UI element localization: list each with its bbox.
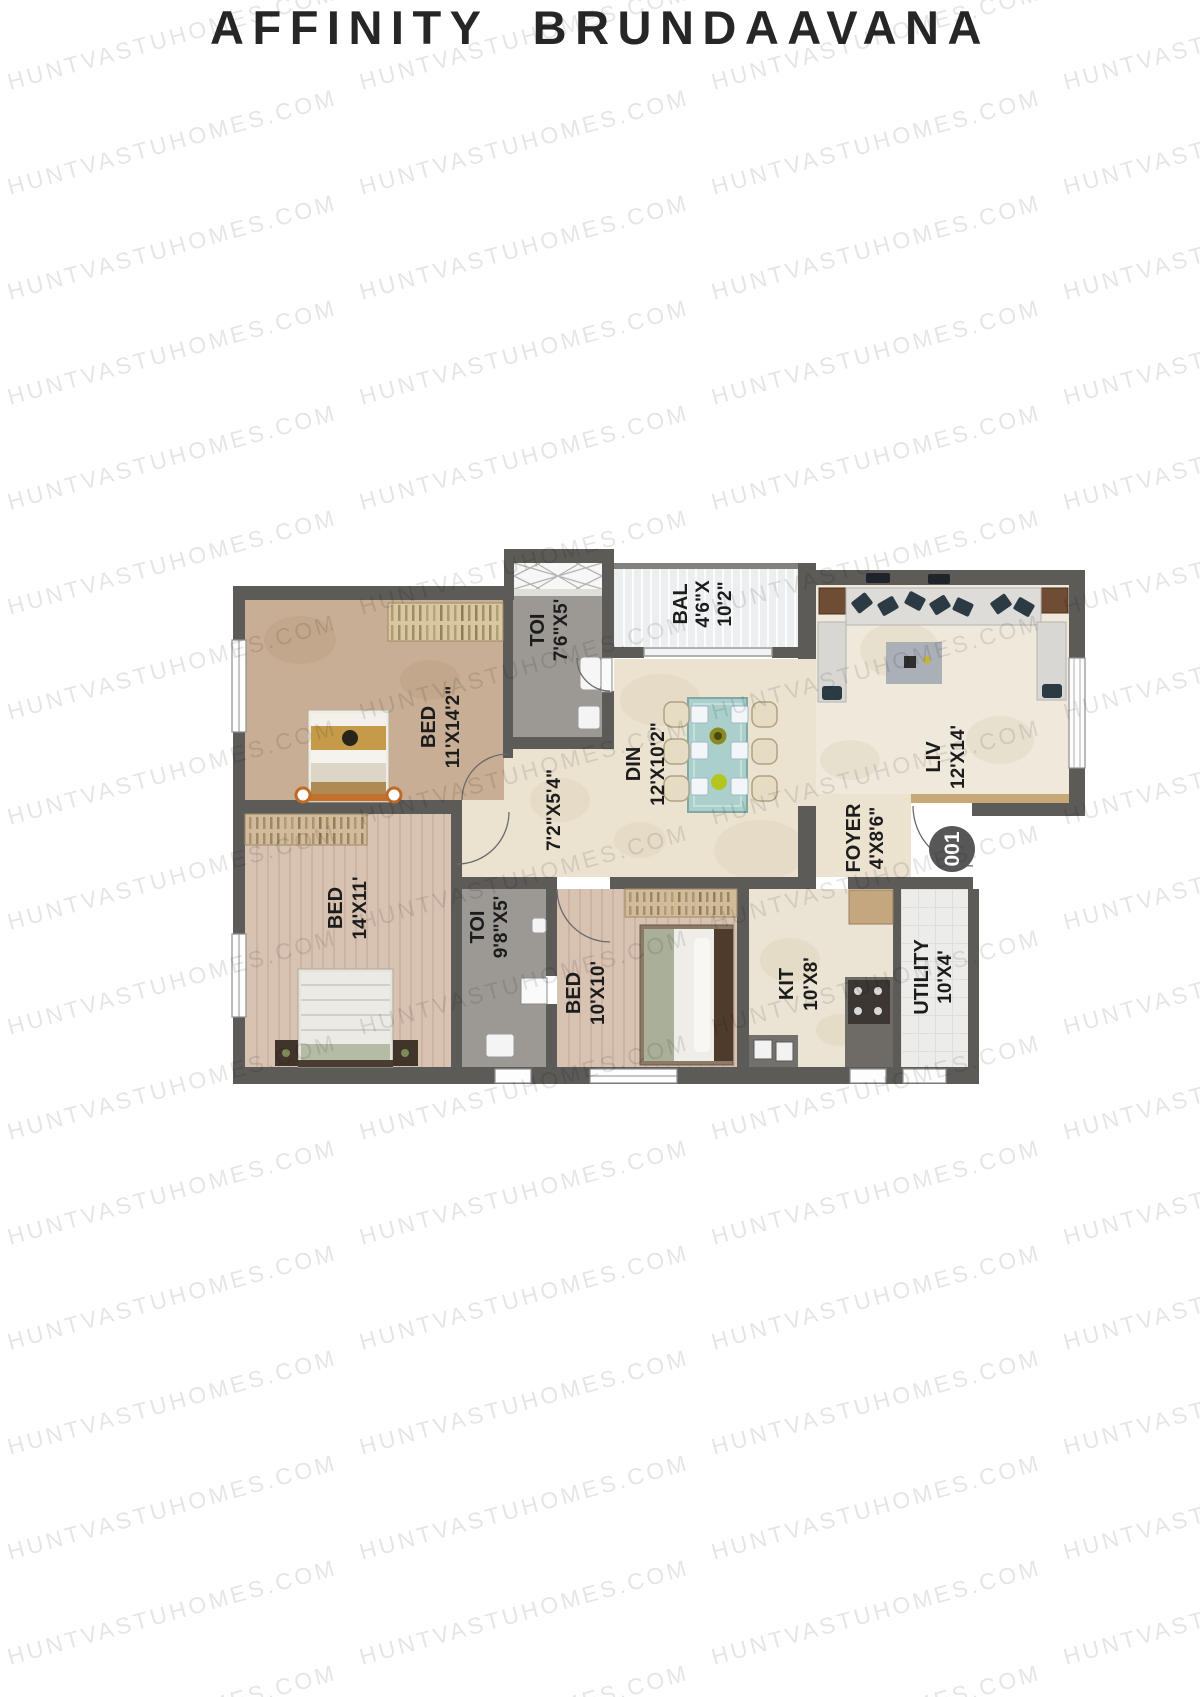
svg-text:HUNTVASTUHOMES.COM: HUNTVASTUHOMES.COM [1060, 84, 1200, 200]
svg-text:BED: BED [325, 887, 347, 929]
svg-text:HUNTVASTUHOMES.COM: HUNTVASTUHOMES.COM [708, 1134, 1044, 1250]
svg-text:TOI: TOI [467, 911, 489, 944]
svg-text:HUNTVASTUHOMES.COM: HUNTVASTUHOMES.COM [356, 399, 692, 515]
svg-text:HUNTVASTUHOMES.COM: HUNTVASTUHOMES.COM [356, 1659, 692, 1697]
svg-text:9'8"X5': 9'8"X5' [491, 896, 512, 958]
svg-text:HUNTVASTUHOMES.COM: HUNTVASTUHOMES.COM [4, 84, 340, 200]
svg-text:HUNTVASTUHOMES.COM: HUNTVASTUHOMES.COM [1060, 1554, 1200, 1670]
svg-text:HUNTVASTUHOMES.COM: HUNTVASTUHOMES.COM [4, 1134, 340, 1250]
svg-text:4'X8'6": 4'X8'6" [867, 807, 888, 869]
svg-text:HUNTVASTUHOMES.COM: HUNTVASTUHOMES.COM [4, 1239, 340, 1355]
svg-text:BED: BED [418, 706, 440, 748]
svg-text:HUNTVASTUHOMES.COM: HUNTVASTUHOMES.COM [708, 1344, 1044, 1460]
svg-text:7'2"X5'4": 7'2"X5'4" [544, 769, 565, 851]
svg-text:HUNTVASTUHOMES.COM: HUNTVASTUHOMES.COM [356, 1134, 692, 1250]
svg-text:HUNTVASTUHOMES.COM: HUNTVASTUHOMES.COM [1060, 1344, 1200, 1460]
svg-text:HUNTVASTUHOMES.COM: HUNTVASTUHOMES.COM [356, 294, 692, 410]
svg-text:HUNTVASTUHOMES.COM: HUNTVASTUHOMES.COM [1060, 924, 1200, 1040]
svg-text:HUNTVASTUHOMES.COM: HUNTVASTUHOMES.COM [708, 294, 1044, 410]
svg-text:HUNTVASTUHOMES.COM: HUNTVASTUHOMES.COM [708, 1659, 1044, 1697]
svg-text:HUNTVASTUHOMES.COM: HUNTVASTUHOMES.COM [4, 0, 340, 95]
svg-text:HUNTVASTUHOMES.COM: HUNTVASTUHOMES.COM [356, 189, 692, 305]
svg-text:HUNTVASTUHOMES.COM: HUNTVASTUHOMES.COM [708, 189, 1044, 305]
svg-text:HUNTVASTUHOMES.COM: HUNTVASTUHOMES.COM [1060, 1029, 1200, 1145]
svg-text:HUNTVASTUHOMES.COM: HUNTVASTUHOMES.COM [1060, 189, 1200, 305]
svg-text:HUNTVASTUHOMES.COM: HUNTVASTUHOMES.COM [356, 0, 692, 95]
svg-text:HUNTVASTUHOMES.COM: HUNTVASTUHOMES.COM [708, 0, 1044, 95]
svg-text:HUNTVASTUHOMES.COM: HUNTVASTUHOMES.COM [4, 189, 340, 305]
svg-text:HUNTVASTUHOMES.COM: HUNTVASTUHOMES.COM [4, 294, 340, 410]
svg-text:HUNTVASTUHOMES.COM: HUNTVASTUHOMES.COM [356, 1344, 692, 1460]
svg-text:HUNTVASTUHOMES.COM: HUNTVASTUHOMES.COM [4, 1659, 340, 1697]
svg-text:TOI: TOI [527, 614, 549, 647]
svg-text:HUNTVASTUHOMES.COM: HUNTVASTUHOMES.COM [708, 399, 1044, 515]
svg-text:HUNTVASTUHOMES.COM: HUNTVASTUHOMES.COM [1060, 504, 1200, 620]
svg-text:HUNTVASTUHOMES.COM: HUNTVASTUHOMES.COM [708, 1554, 1044, 1670]
svg-text:HUNTVASTUHOMES.COM: HUNTVASTUHOMES.COM [1060, 1449, 1200, 1565]
svg-text:HUNTVASTUHOMES.COM: HUNTVASTUHOMES.COM [356, 84, 692, 200]
svg-text:HUNTVASTUHOMES.COM: HUNTVASTUHOMES.COM [1060, 1239, 1200, 1355]
svg-text:HUNTVASTUHOMES.COM: HUNTVASTUHOMES.COM [4, 1344, 340, 1460]
svg-text:HUNTVASTUHOMES.COM: HUNTVASTUHOMES.COM [4, 1554, 340, 1670]
svg-text:HUNTVASTUHOMES.COM: HUNTVASTUHOMES.COM [356, 1554, 692, 1670]
svg-text:HUNTVASTUHOMES.COM: HUNTVASTUHOMES.COM [708, 1449, 1044, 1565]
svg-text:FOYER: FOYER [843, 803, 865, 872]
svg-text:HUNTVASTUHOMES.COM: HUNTVASTUHOMES.COM [4, 1029, 340, 1145]
svg-text:HUNTVASTUHOMES.COM: HUNTVASTUHOMES.COM [4, 399, 340, 515]
svg-text:HUNTVASTUHOMES.COM: HUNTVASTUHOMES.COM [1060, 399, 1200, 515]
svg-text:HUNTVASTUHOMES.COM: HUNTVASTUHOMES.COM [356, 1449, 692, 1565]
svg-text:HUNTVASTUHOMES.COM: HUNTVASTUHOMES.COM [1060, 1134, 1200, 1250]
svg-text:HUNTVASTUHOMES.COM: HUNTVASTUHOMES.COM [1060, 0, 1200, 95]
svg-text:HUNTVASTUHOMES.COM: HUNTVASTUHOMES.COM [356, 1239, 692, 1355]
svg-text:HUNTVASTUHOMES.COM: HUNTVASTUHOMES.COM [708, 84, 1044, 200]
svg-text:HUNTVASTUHOMES.COM: HUNTVASTUHOMES.COM [1060, 294, 1200, 410]
svg-text:HUNTVASTUHOMES.COM: HUNTVASTUHOMES.COM [708, 1239, 1044, 1355]
svg-text:HUNTVASTUHOMES.COM: HUNTVASTUHOMES.COM [4, 1449, 340, 1565]
svg-text:HUNTVASTUHOMES.COM: HUNTVASTUHOMES.COM [1060, 819, 1200, 935]
